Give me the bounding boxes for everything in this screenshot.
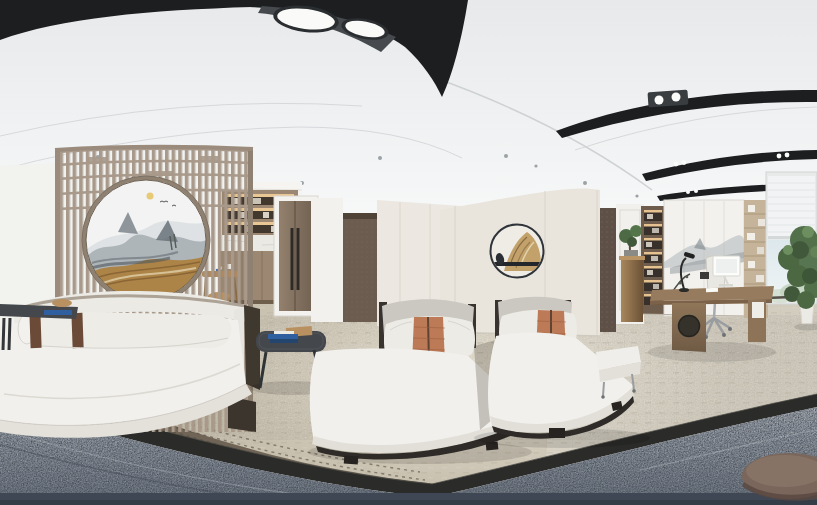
bowl (52, 299, 72, 307)
speaker-icon (679, 316, 700, 337)
door-handle (297, 228, 300, 290)
office-wallpaper (600, 208, 616, 332)
blue-book (44, 310, 72, 315)
wall-stile (311, 198, 343, 322)
desk-drawer (752, 302, 764, 318)
panorama-image (0, 0, 817, 505)
desk-papers (706, 288, 718, 293)
blue-book (268, 334, 298, 339)
wall-art-circle (491, 225, 544, 278)
slatted-wall-panel (343, 213, 377, 322)
desk-phone (700, 272, 709, 279)
painting-sun (147, 193, 154, 200)
door-handle (291, 228, 294, 290)
moon-gate-painting (82, 176, 210, 304)
